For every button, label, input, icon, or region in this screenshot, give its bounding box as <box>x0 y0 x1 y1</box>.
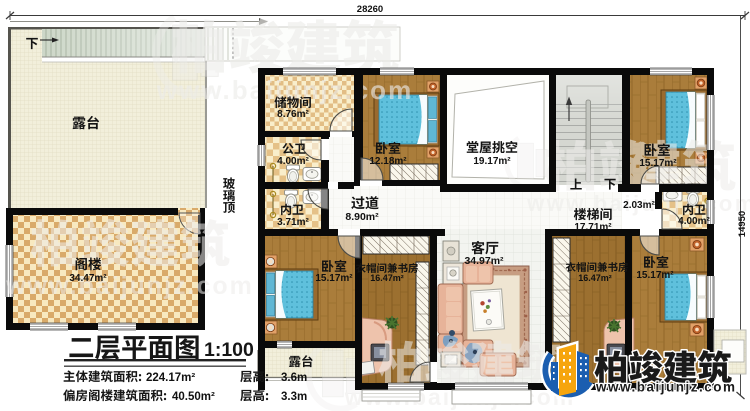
svg-text:34.47m²: 34.47m² <box>69 273 107 284</box>
svg-text:2.03m²: 2.03m² <box>623 200 655 211</box>
svg-text:224.17m²: 224.17m² <box>146 372 195 384</box>
svg-text:14950: 14950 <box>737 211 748 237</box>
svg-text:28260: 28260 <box>357 4 383 15</box>
svg-text:16.47m²: 16.47m² <box>578 273 612 283</box>
svg-text:www.baijunjz.com: www.baijunjz.com <box>595 380 737 395</box>
svg-text:15.17m²: 15.17m² <box>636 270 674 281</box>
svg-text:4.00m²: 4.00m² <box>678 216 710 227</box>
svg-text:17.71m²: 17.71m² <box>574 222 612 233</box>
svg-text:34.97m²: 34.97m² <box>464 255 504 267</box>
svg-text:1:100: 1:100 <box>204 339 254 361</box>
svg-text:8.90m²: 8.90m² <box>345 211 379 223</box>
svg-text:15.17m²: 15.17m² <box>315 273 353 284</box>
svg-text:16.47m²: 16.47m² <box>370 273 404 283</box>
svg-text:www.baijunjz.com: www.baijunjz.com <box>5 272 254 300</box>
svg-text:19.17m²: 19.17m² <box>473 156 511 167</box>
svg-text:3.3m: 3.3m <box>281 391 307 403</box>
svg-text:12.18m²: 12.18m² <box>369 156 407 167</box>
svg-text:4.00m²: 4.00m² <box>277 156 309 167</box>
svg-text:40.50m²: 40.50m² <box>172 391 215 403</box>
svg-text:3.71m²: 3.71m² <box>277 217 309 228</box>
svg-text:15.17m²: 15.17m² <box>639 158 677 169</box>
svg-text:3.6m: 3.6m <box>281 372 307 384</box>
svg-text:8.76m²: 8.76m² <box>277 109 309 120</box>
